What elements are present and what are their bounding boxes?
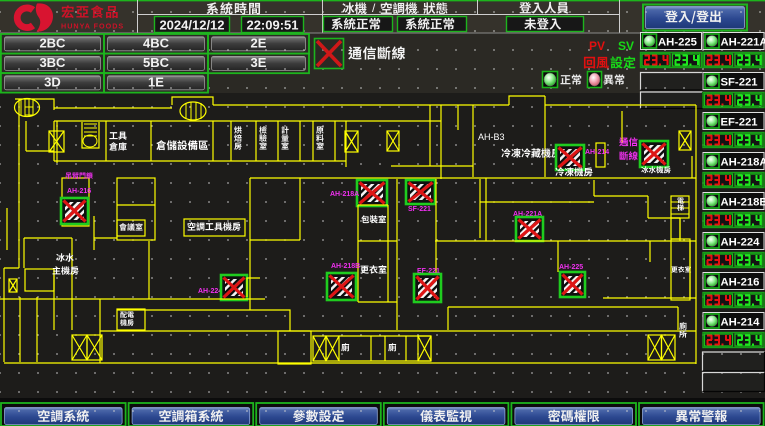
svg-text:SF-221: SF-221 xyxy=(721,77,758,89)
svg-text:3BC: 3BC xyxy=(39,55,66,70)
svg-text:SF-221: SF-221 xyxy=(408,206,431,213)
svg-text:AH-225: AH-225 xyxy=(559,264,583,271)
svg-text:4BC: 4BC xyxy=(143,35,170,50)
svg-text:2024/12/12: 2024/12/12 xyxy=(159,18,224,33)
svg-text:AH-218B: AH-218B xyxy=(721,197,765,209)
svg-text:AH-218A: AH-218A xyxy=(721,157,765,169)
svg-text:2E: 2E xyxy=(251,35,267,50)
svg-text:EF-221: EF-221 xyxy=(721,117,758,129)
svg-text:1E: 1E xyxy=(148,74,164,89)
svg-text:AH-216: AH-216 xyxy=(67,188,91,195)
svg-text:PV: PV xyxy=(589,39,605,53)
svg-text:AH-B3: AH-B3 xyxy=(478,132,505,142)
svg-text:AH-218A: AH-218A xyxy=(330,191,359,198)
svg-text:AH-224: AH-224 xyxy=(721,237,761,249)
svg-text:22:09:51: 22:09:51 xyxy=(246,18,298,33)
svg-text:HUNYA FOODS: HUNYA FOODS xyxy=(61,22,124,31)
svg-text:3E: 3E xyxy=(251,55,267,70)
svg-text:2BC: 2BC xyxy=(39,35,66,50)
svg-text:AH-218B: AH-218B xyxy=(331,263,360,270)
svg-text:AH-224: AH-224 xyxy=(198,288,222,295)
svg-text:5BC: 5BC xyxy=(143,55,170,70)
svg-text:AH-214: AH-214 xyxy=(721,317,761,329)
svg-text:AH-214: AH-214 xyxy=(585,149,609,156)
svg-text:AH-225: AH-225 xyxy=(658,37,697,49)
svg-text:3D: 3D xyxy=(44,74,61,89)
svg-text:AH-221A: AH-221A xyxy=(721,37,765,49)
svg-text:AH-216: AH-216 xyxy=(721,277,760,289)
svg-text:SV: SV xyxy=(618,39,634,53)
